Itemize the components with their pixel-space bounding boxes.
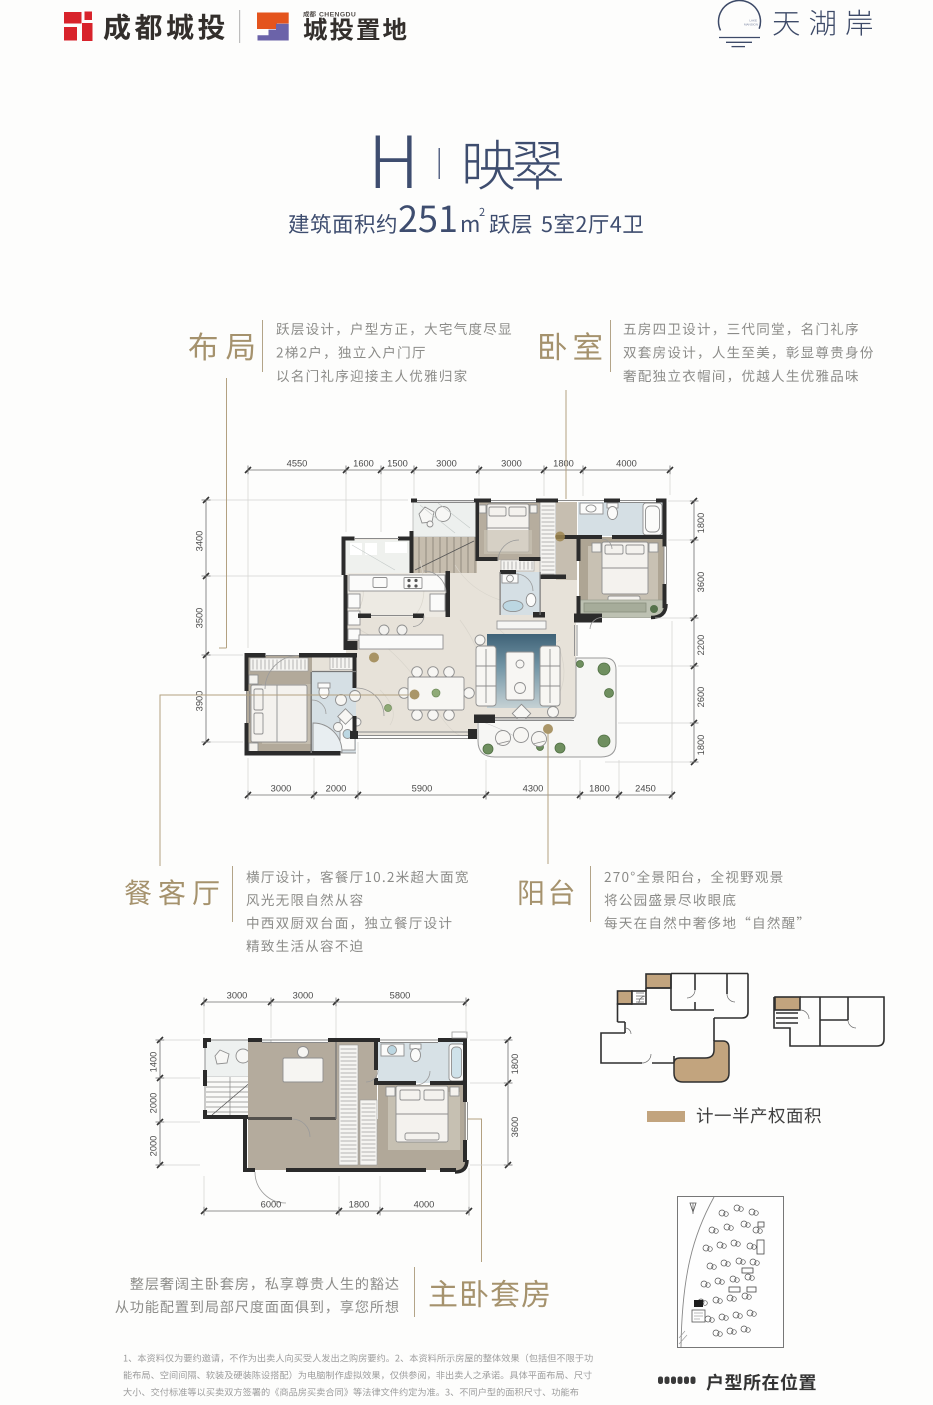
svg-text:3400: 3400 (195, 531, 205, 552)
svg-text:4550: 4550 (287, 459, 308, 469)
svg-text:3000: 3000 (271, 784, 292, 794)
svg-text:1800: 1800 (349, 1200, 370, 1210)
svg-text:1800: 1800 (696, 735, 706, 756)
svg-text:1500: 1500 (387, 459, 408, 469)
svg-text:2000: 2000 (326, 784, 347, 794)
svg-text:6000: 6000 (261, 1200, 282, 1210)
svg-text:1800: 1800 (589, 784, 610, 794)
svg-text:2200: 2200 (696, 635, 706, 656)
svg-text:2450: 2450 (635, 784, 656, 794)
svg-text:4000: 4000 (616, 459, 637, 469)
svg-text:3000: 3000 (227, 991, 248, 1001)
svg-text:MANSION: MANSION (744, 23, 758, 27)
svg-text:2000: 2000 (149, 1093, 159, 1114)
svg-text:1400: 1400 (149, 1052, 159, 1073)
svg-text:1800: 1800 (510, 1054, 520, 1075)
svg-text:3900: 3900 (195, 691, 205, 712)
svg-text:3500: 3500 (195, 608, 205, 629)
svg-text:5800: 5800 (390, 991, 411, 1001)
svg-text:3600: 3600 (510, 1117, 520, 1138)
svg-text:3000: 3000 (293, 991, 314, 1001)
svg-text:1800: 1800 (696, 513, 706, 534)
svg-text:3000: 3000 (436, 459, 457, 469)
svg-text:5900: 5900 (412, 784, 433, 794)
svg-text:CHENGDU: CHENGDU (319, 12, 356, 19)
svg-text:3600: 3600 (696, 572, 706, 593)
svg-text:4300: 4300 (523, 784, 544, 794)
svg-text:1800: 1800 (553, 459, 574, 469)
svg-text:2000: 2000 (149, 1136, 159, 1157)
svg-text:1600: 1600 (353, 459, 374, 469)
svg-text:2600: 2600 (696, 687, 706, 708)
svg-text:4000: 4000 (414, 1200, 435, 1210)
svg-text:3000: 3000 (501, 459, 522, 469)
